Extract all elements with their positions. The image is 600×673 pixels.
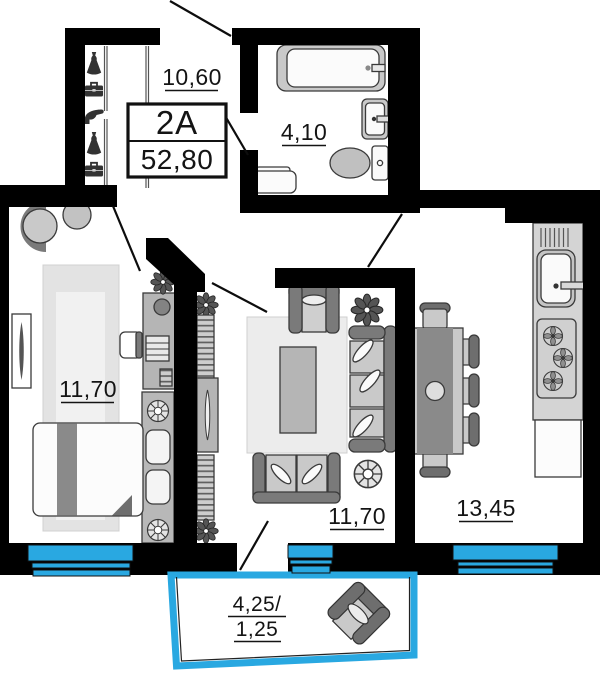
bedroom-tv-icon bbox=[12, 314, 31, 388]
bathtub-icon bbox=[277, 45, 385, 91]
balcony-door-glazing bbox=[288, 545, 333, 558]
living-top-wall bbox=[275, 268, 397, 288]
washbasin-icon bbox=[362, 99, 389, 139]
bedroom-window-sill bbox=[33, 570, 130, 576]
bathroom-left-wall-upper bbox=[240, 28, 258, 113]
bedside-lamp-icon bbox=[148, 401, 169, 422]
bookshelf-icon bbox=[197, 315, 214, 378]
balcony bbox=[171, 575, 414, 666]
hallway-left-wall bbox=[65, 28, 85, 188]
pouf-icon bbox=[354, 460, 381, 487]
balcony-area-label-2: 1,25 bbox=[236, 618, 278, 641]
flower-icon bbox=[194, 293, 218, 317]
sofa-icon bbox=[349, 326, 397, 452]
bedroom-window-sill bbox=[32, 563, 130, 568]
bedroom-top-wall bbox=[0, 185, 117, 207]
bedroom-living-wall bbox=[174, 278, 197, 575]
unit-total-area: 52,80 bbox=[141, 144, 214, 175]
bathroom-area-label: 4,10 bbox=[281, 119, 327, 145]
vanity-desk-icon bbox=[143, 293, 175, 389]
kitchen-area-label: 13,45 bbox=[456, 495, 516, 521]
chair-icon bbox=[420, 467, 450, 477]
unit-info-box: 2A 52,80 bbox=[128, 104, 226, 177]
tv-stand-icon bbox=[197, 378, 218, 452]
kitchen-window-sill bbox=[458, 562, 553, 566]
armchair-icon bbox=[289, 285, 339, 333]
kitchen-counter bbox=[533, 223, 587, 477]
flower-icon bbox=[194, 519, 218, 543]
stove-burner-icon bbox=[554, 349, 573, 368]
right-wall bbox=[583, 190, 600, 575]
plant-icon bbox=[351, 294, 383, 326]
left-wall bbox=[0, 185, 9, 575]
toilet-icon bbox=[330, 146, 388, 180]
floor-plan: 2A 52,80 10,60 4,10 11,70 11,70 13,45 4,… bbox=[0, 0, 600, 673]
stool-icon bbox=[120, 332, 142, 358]
bedside-lamp-icon bbox=[148, 520, 169, 541]
stove-burner-icon bbox=[544, 327, 563, 346]
bookshelf-icon bbox=[197, 455, 214, 520]
top-wall-left bbox=[65, 28, 160, 45]
bathroom-right-wall bbox=[388, 28, 420, 213]
kitchen-window-glazing bbox=[453, 545, 558, 560]
stove-burner-icon bbox=[544, 372, 563, 391]
bathroom-bottom-wall bbox=[240, 195, 410, 213]
bedroom-area-label: 11,70 bbox=[59, 376, 117, 402]
hallway-area-label: 10,60 bbox=[162, 64, 222, 90]
windows bbox=[28, 545, 558, 576]
balcony-door-sill bbox=[290, 560, 332, 564]
balcony-door-sill bbox=[292, 566, 330, 573]
pillow-icon bbox=[146, 430, 170, 464]
loveseat-icon bbox=[253, 453, 340, 503]
floor-plan-page: 2A 52,80 10,60 4,10 11,70 11,70 13,45 4,… bbox=[0, 0, 600, 673]
bedroom-window-glazing bbox=[28, 545, 133, 561]
drainboard-icon bbox=[541, 228, 568, 247]
living-kitchen-wall bbox=[395, 268, 415, 575]
chair-icon bbox=[423, 309, 447, 329]
fridge-icon bbox=[535, 420, 581, 477]
pillow-icon bbox=[146, 470, 170, 504]
stove-icon bbox=[537, 319, 576, 398]
coffee-table-icon bbox=[280, 347, 316, 433]
balcony-area-label-1: 4,25/ bbox=[233, 593, 282, 616]
balcony-door-opening bbox=[237, 543, 288, 575]
unit-code: 2A bbox=[156, 104, 198, 141]
living-area-label: 11,70 bbox=[328, 503, 386, 529]
kitchen-window-sill bbox=[458, 568, 553, 574]
